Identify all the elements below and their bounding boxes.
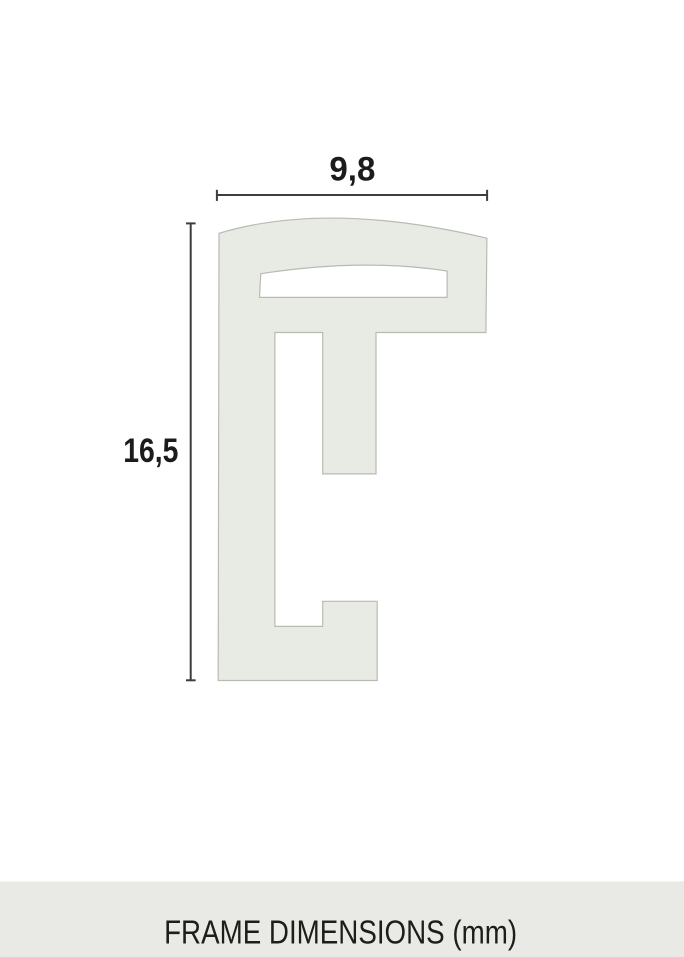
svg-text:FRAME DIMENSIONS (mm): FRAME DIMENSIONS (mm) [164,914,517,951]
svg-text:9,8: 9,8 [329,151,375,189]
svg-text:16,5: 16,5 [123,432,178,470]
